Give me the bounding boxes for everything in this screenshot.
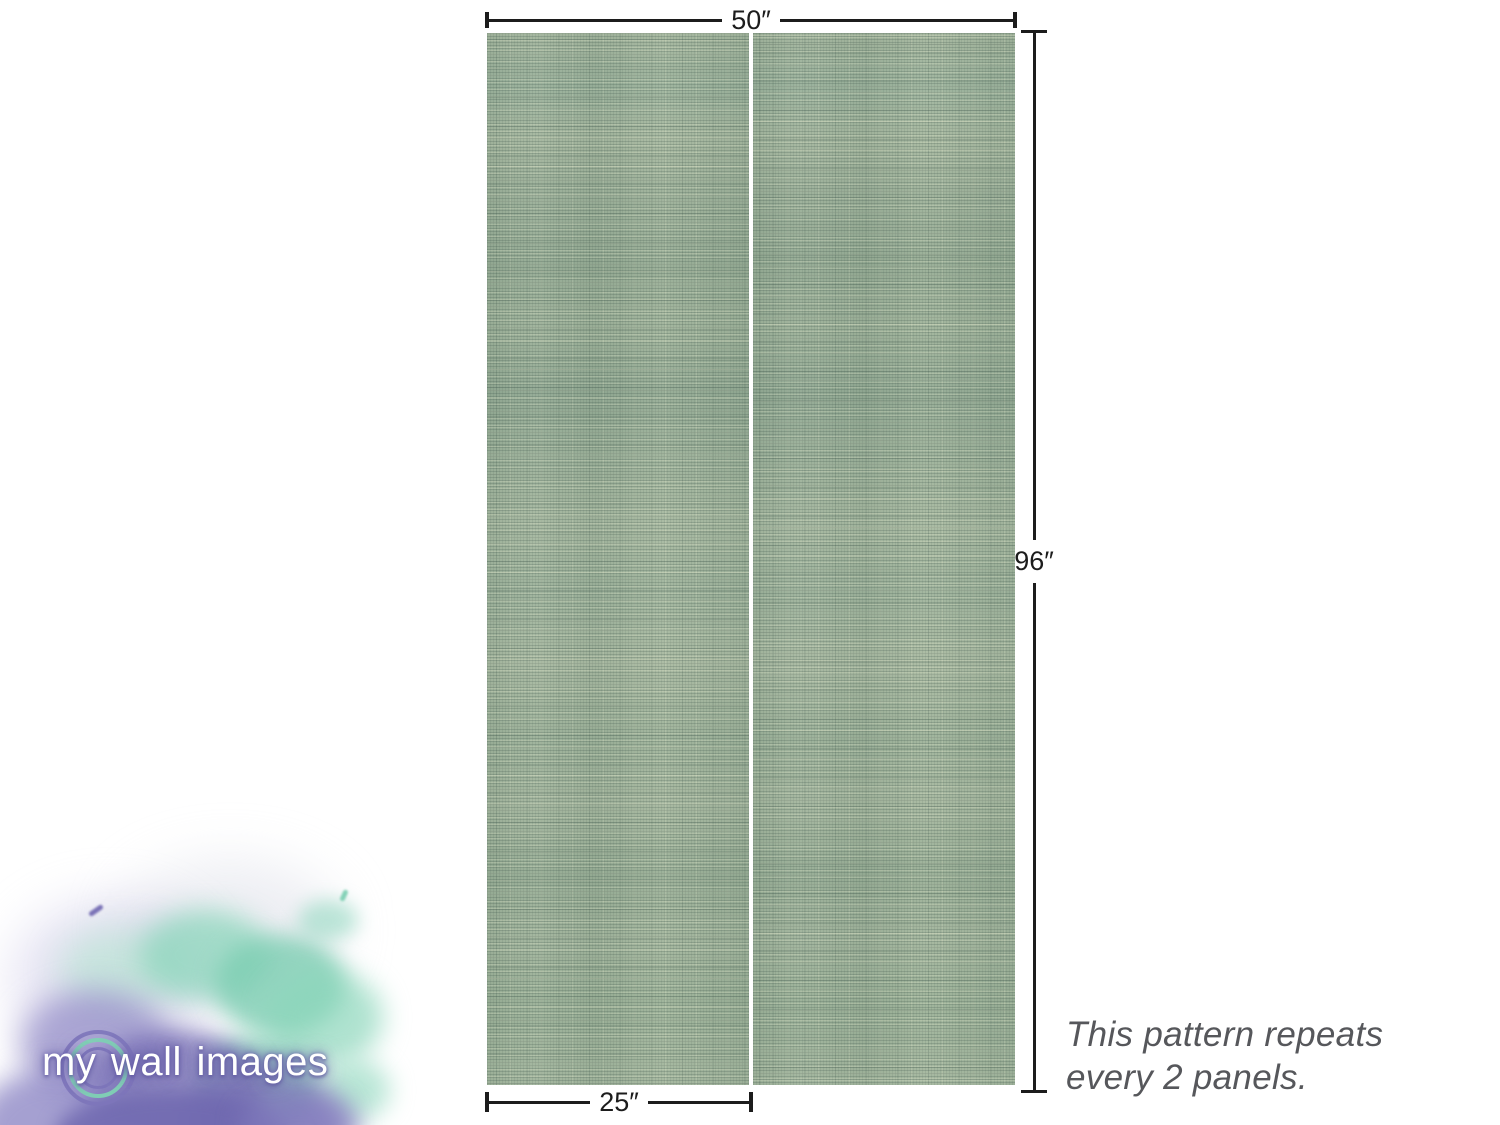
watercolor-blob xyxy=(320,1060,390,1120)
watercolor-blob xyxy=(85,1030,265,1125)
watercolor-speck xyxy=(339,889,349,902)
dim-tick xyxy=(1021,1090,1047,1093)
product-image: 50″ 96″ 25″ This pattern repeats every 2… xyxy=(0,0,1500,1125)
logo-rings-icon xyxy=(68,1038,128,1098)
watercolor-blob xyxy=(0,1070,125,1125)
watercolor-blob xyxy=(298,900,358,940)
brand-logo-text: my wall images xyxy=(42,1040,328,1084)
watercolor-blob xyxy=(195,1035,320,1125)
wallpaper-panel-left xyxy=(487,33,749,1085)
watercolor-blob xyxy=(268,970,383,1065)
watercolor-blob xyxy=(120,860,340,1000)
dimension-panel-width: 25″ xyxy=(485,1092,753,1112)
watercolor-blob xyxy=(185,1070,345,1125)
watercolor-blob xyxy=(240,1095,360,1125)
wallpaper-panel-right xyxy=(753,33,1015,1085)
dim-line-segment xyxy=(1033,33,1036,540)
dimension-height-label: 96″ xyxy=(1014,540,1054,583)
watercolor-blob xyxy=(60,930,180,1010)
dimension-height: 96″ xyxy=(1021,30,1047,1093)
watercolor-speck xyxy=(88,904,104,917)
repeat-note-line1: This pattern repeats xyxy=(1066,1013,1383,1056)
watercolor-blob xyxy=(55,1090,285,1125)
dimension-panel-width-label: 25″ xyxy=(590,1089,648,1116)
watercolor-blob xyxy=(10,900,210,1060)
brand-logo: my wall images xyxy=(0,0,1500,1125)
logo-rings-icon xyxy=(77,1047,119,1089)
dim-line-segment xyxy=(489,19,722,22)
watercolor-blob xyxy=(140,910,270,1000)
dim-line-segment xyxy=(489,1101,590,1104)
dim-tick xyxy=(749,1092,753,1112)
dimension-total-width-label: 50″ xyxy=(722,7,780,34)
dimension-total-width: 50″ xyxy=(485,12,1017,28)
repeat-note: This pattern repeats every 2 panels. xyxy=(1066,1013,1383,1100)
repeat-note-line2: every 2 panels. xyxy=(1066,1056,1383,1099)
dim-line-segment xyxy=(780,19,1013,22)
logo-rings-icon xyxy=(60,1030,136,1106)
dim-line-segment xyxy=(648,1101,749,1104)
watercolor-blob xyxy=(20,990,170,1100)
dim-tick xyxy=(1013,12,1017,28)
dim-line-segment xyxy=(1033,583,1036,1090)
watercolor-blob xyxy=(215,935,345,1035)
